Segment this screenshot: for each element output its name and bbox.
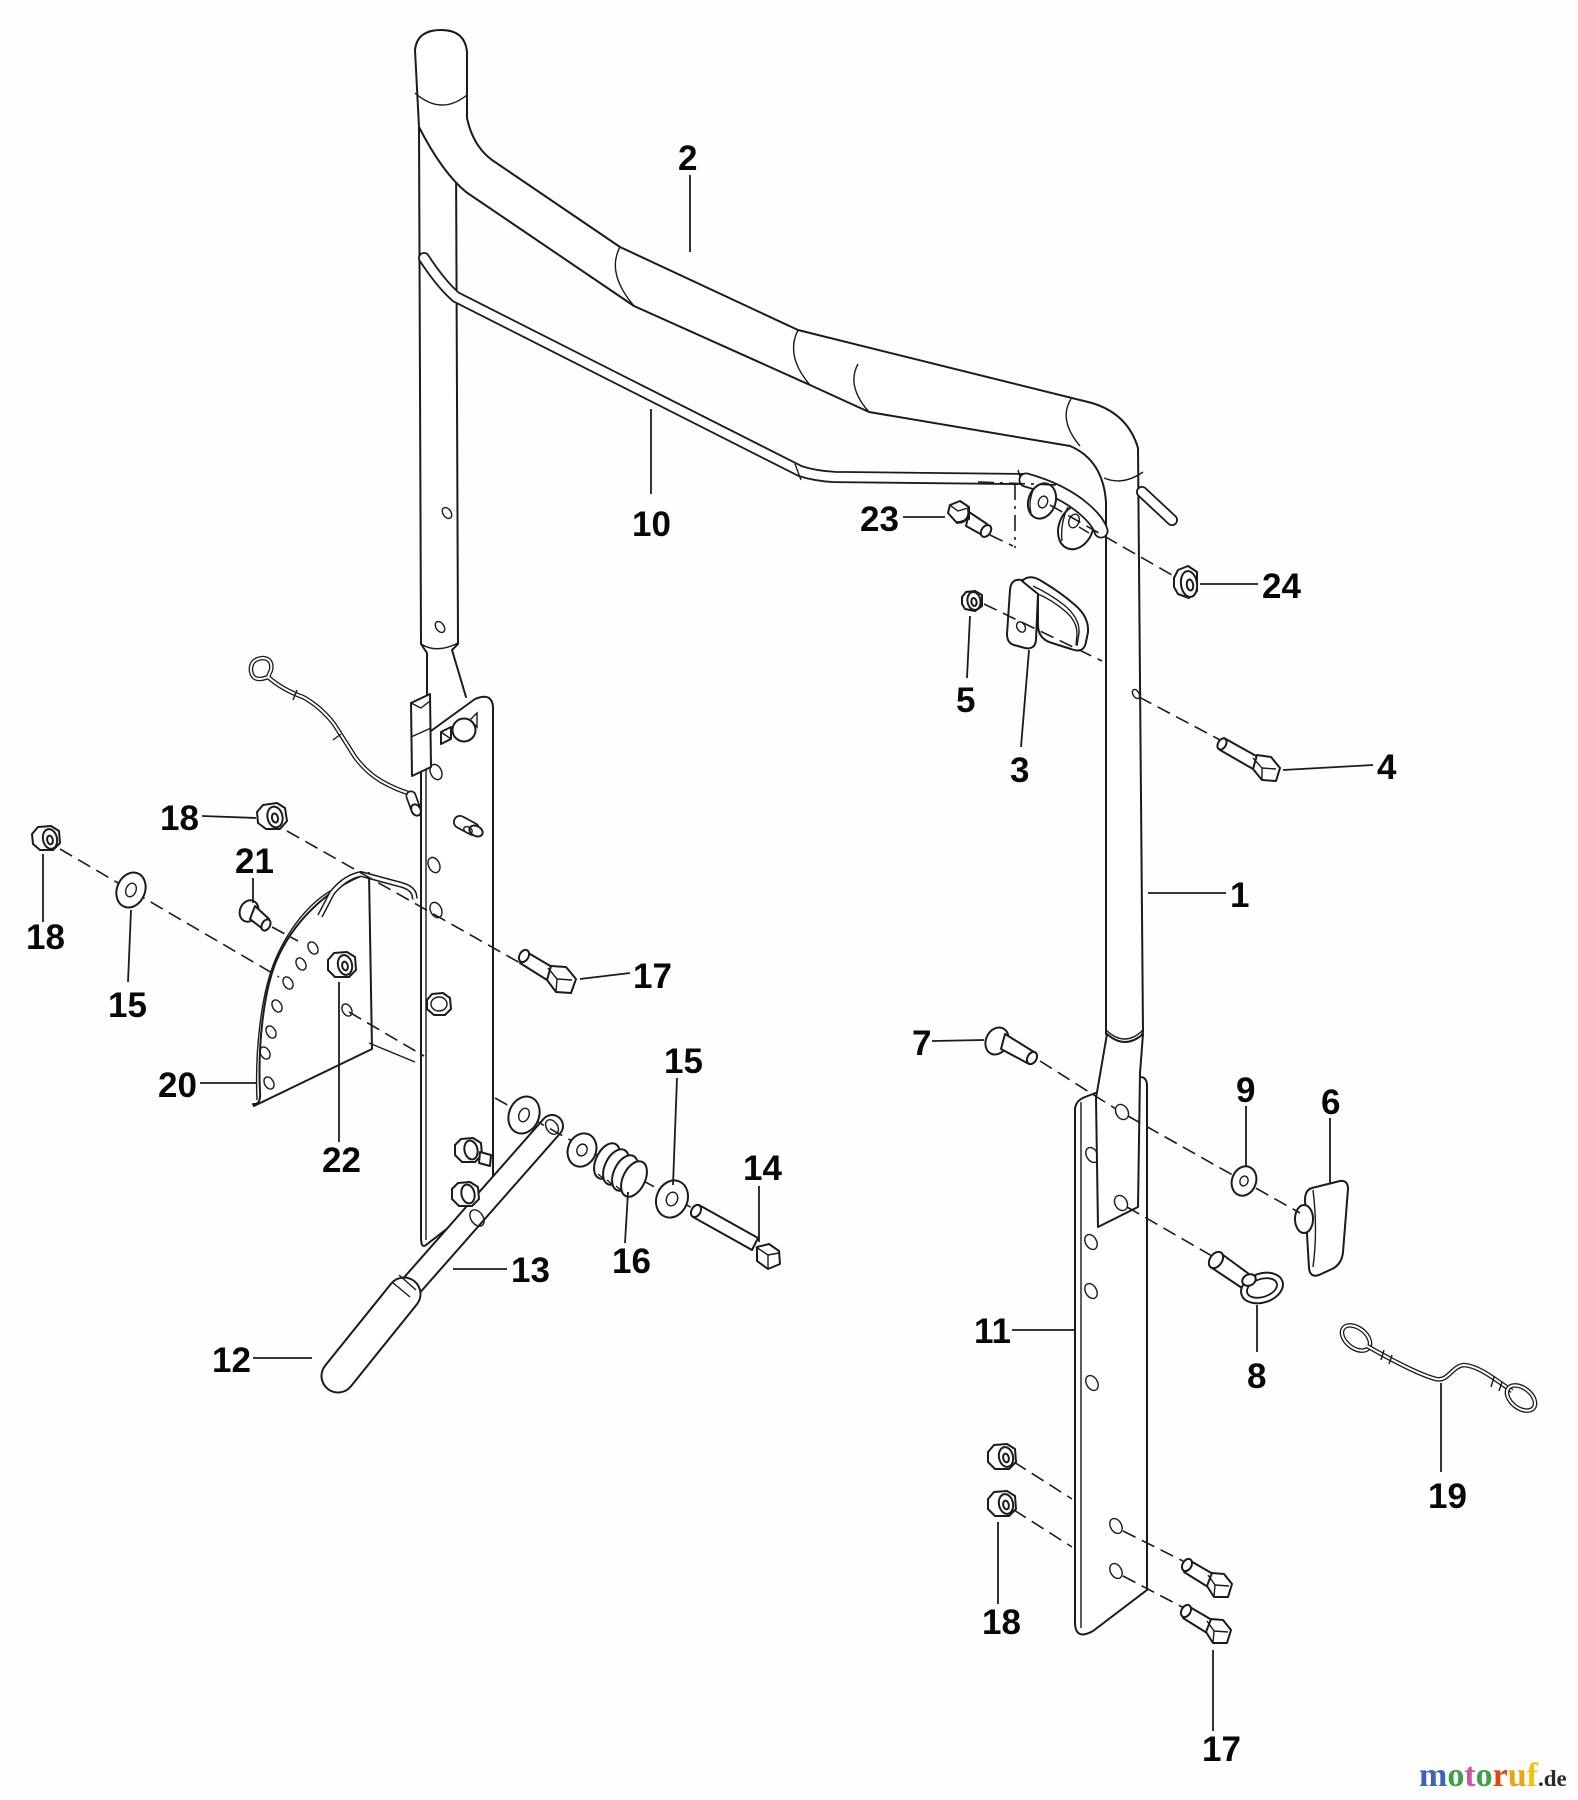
svg-text:16: 16 — [612, 1242, 651, 1281]
svg-text:8: 8 — [1247, 1357, 1266, 1396]
svg-text:17: 17 — [633, 957, 672, 996]
svg-text:10: 10 — [632, 505, 671, 544]
svg-text:5: 5 — [956, 681, 975, 720]
svg-text:19: 19 — [1428, 1477, 1467, 1516]
svg-text:1: 1 — [1230, 876, 1249, 915]
svg-text:18: 18 — [160, 799, 199, 838]
svg-text:7: 7 — [912, 1024, 931, 1063]
svg-text:23: 23 — [860, 500, 899, 539]
svg-text:12: 12 — [212, 1341, 251, 1380]
svg-text:14: 14 — [743, 1149, 782, 1188]
svg-text:9: 9 — [1236, 1071, 1255, 1110]
svg-text:11: 11 — [974, 1312, 1011, 1351]
svg-text:15: 15 — [664, 1042, 703, 1081]
svg-text:15: 15 — [108, 986, 147, 1025]
svg-text:2: 2 — [678, 139, 697, 178]
svg-text:13: 13 — [511, 1251, 550, 1290]
svg-text:24: 24 — [1262, 567, 1301, 606]
svg-text:4: 4 — [1377, 748, 1397, 787]
svg-text:20: 20 — [158, 1066, 197, 1105]
svg-text:21: 21 — [235, 842, 274, 881]
svg-text:6: 6 — [1321, 1083, 1340, 1122]
svg-text:17: 17 — [1202, 1730, 1241, 1769]
svg-text:22: 22 — [322, 1141, 361, 1180]
svg-text:3: 3 — [1010, 751, 1029, 790]
svg-text:18: 18 — [982, 1603, 1021, 1642]
svg-text:18: 18 — [26, 918, 65, 957]
